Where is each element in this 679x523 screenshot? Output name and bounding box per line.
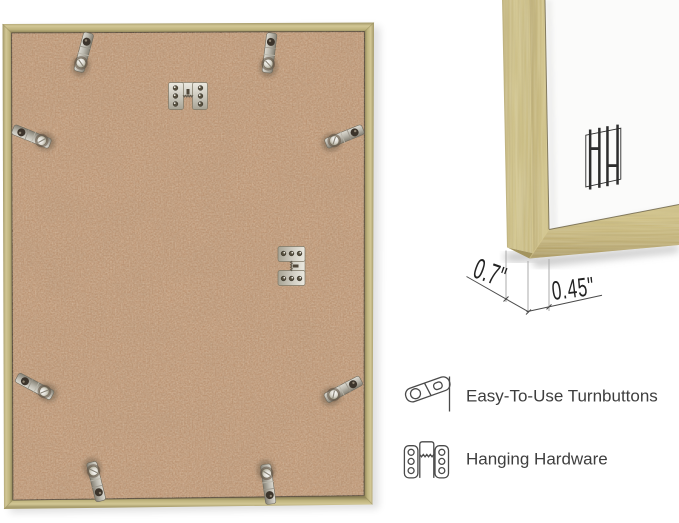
svg-text:0.45": 0.45" <box>550 271 596 306</box>
svg-text:Easy-To-Use Turnbuttons: Easy-To-Use Turnbuttons <box>466 386 658 405</box>
svg-text:0.7": 0.7" <box>469 253 510 294</box>
svg-text:Hanging Hardware: Hanging Hardware <box>466 450 608 469</box>
